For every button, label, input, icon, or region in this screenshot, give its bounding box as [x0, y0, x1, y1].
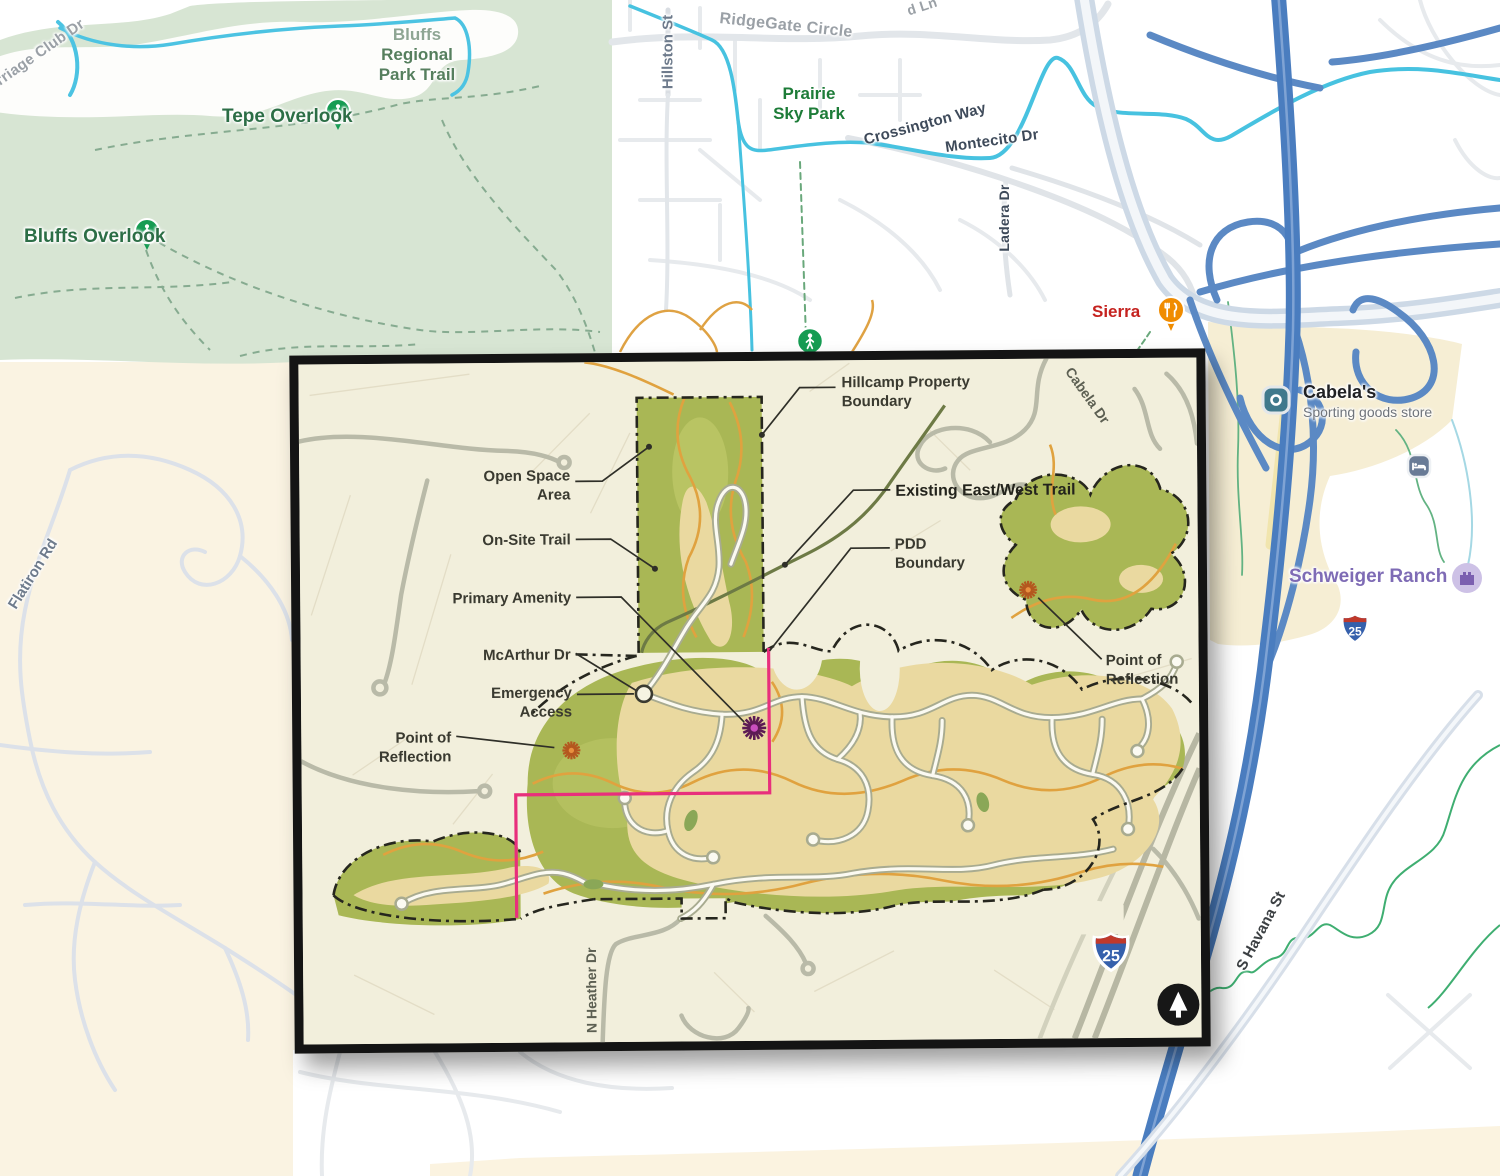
callout-open-space: Open SpaceArea — [430, 466, 570, 505]
prairie-line2: Sky Park — [773, 104, 845, 124]
callout-existing-trail: Existing East/West Trail — [895, 480, 1075, 500]
park-trail-line1: Bluffs — [379, 25, 456, 45]
inset-street-heather: N Heather Dr — [583, 947, 600, 1033]
park-trail-line3: Park Trail — [379, 65, 456, 85]
landmark-poi-icon[interactable] — [1450, 561, 1484, 595]
restaurant-pin-icon[interactable] — [1156, 296, 1186, 333]
shield-number: 25 — [1102, 948, 1120, 965]
street-label-hillston: Hillston St — [660, 15, 677, 89]
prairie-line1: Prairie — [773, 84, 845, 104]
park-trail-line2: Regional — [379, 45, 456, 65]
callout-point-right: Point ofReflection — [1106, 651, 1179, 690]
shopping-poi-icon[interactable] — [1260, 384, 1292, 416]
shield-number: 25 — [1348, 624, 1362, 638]
poi-label-bluffs-overlook[interactable]: Bluffs Overlook — [24, 226, 165, 248]
callout-hillcamp: Hillcamp PropertyBoundary — [841, 372, 970, 411]
callout-primary-amenity: Primary Amenity — [431, 588, 571, 608]
callout-onsite-trail: On-Site Trail — [431, 530, 571, 550]
site-plan-inset: 25 Hillcamp PropertyBoundary Open SpaceA… — [289, 348, 1210, 1053]
poi-sublabel-cabelas: Sporting goods store — [1303, 404, 1432, 420]
callout-mcarthur: McArthur Dr — [431, 645, 571, 665]
callout-point-left: Point ofReflection — [320, 728, 451, 767]
map-canvas[interactable]: 25 Bluffs Regional Park Trail Tepe Overl… — [0, 0, 1500, 1176]
street-label-ladera: Ladera Dr — [996, 184, 1012, 251]
poi-label-prairie-sky-park[interactable]: Prairie Sky Park — [773, 84, 845, 124]
callout-emergency: EmergencyAccess — [432, 683, 572, 722]
callout-pdd: PDDBoundary — [895, 534, 965, 573]
interstate-shield-icon: 25 — [1340, 612, 1370, 645]
poi-label-cabelas[interactable]: Cabela's — [1303, 382, 1376, 403]
lodging-poi-icon[interactable] — [1406, 453, 1432, 479]
primary-amenity-icon — [742, 716, 766, 740]
poi-label-schweiger-ranch[interactable]: Schweiger Ranch — [1289, 566, 1447, 588]
emergency-access-marker — [636, 686, 652, 702]
park-area — [0, 0, 612, 364]
poi-label-sierra[interactable]: Sierra — [1092, 302, 1140, 322]
park-trail-label[interactable]: Bluffs Regional Park Trail — [379, 25, 456, 85]
north-arrow-icon — [1157, 983, 1199, 1025]
poi-label-tepe-overlook[interactable]: Tepe Overlook — [222, 106, 353, 128]
